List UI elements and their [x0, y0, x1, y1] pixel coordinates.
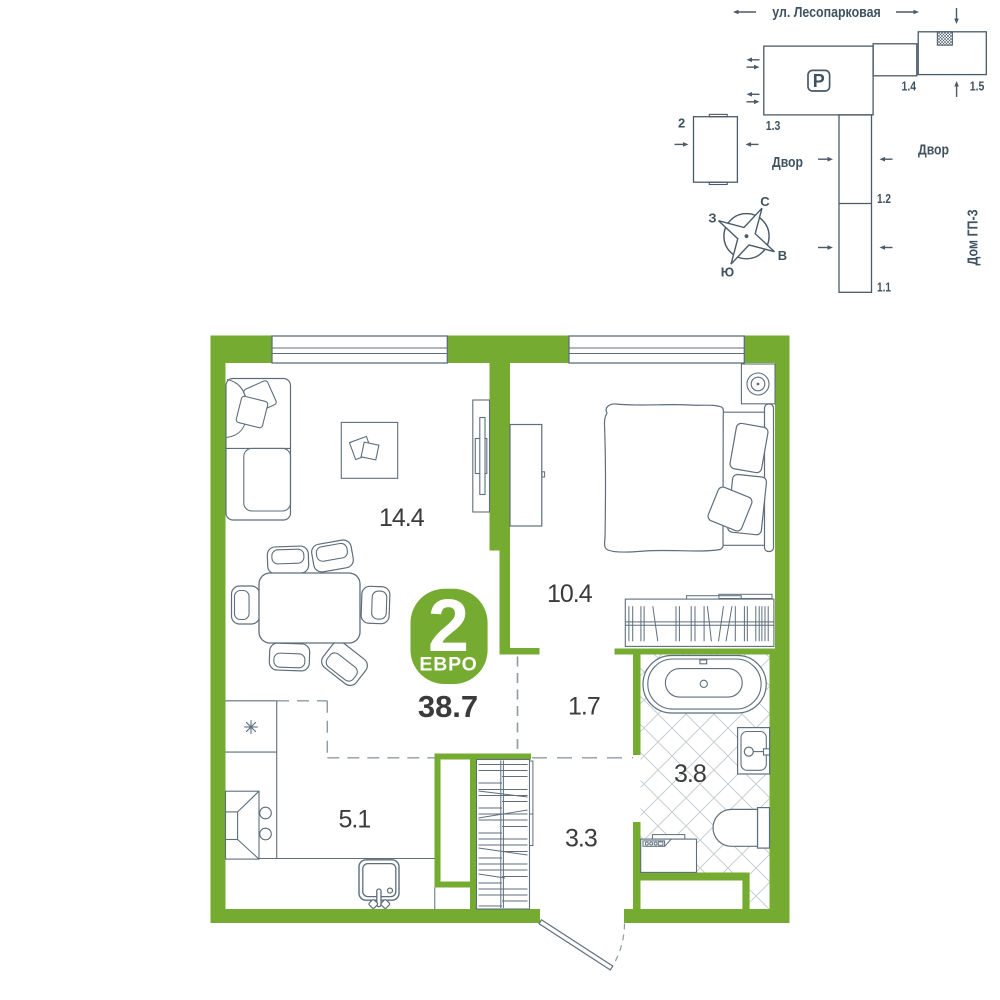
- svg-text:1.1: 1.1: [877, 280, 891, 295]
- svg-text:3.8: 3.8: [674, 760, 706, 788]
- svg-text:1.5: 1.5: [970, 79, 985, 94]
- svg-text:14.4: 14.4: [379, 504, 425, 532]
- svg-text:Двор: Двор: [918, 143, 949, 159]
- svg-text:С: С: [760, 194, 770, 209]
- svg-text:З: З: [708, 211, 716, 226]
- svg-text:3.3: 3.3: [565, 824, 597, 852]
- svg-text:ул. Лесопарковая: ул. Лесопарковая: [772, 4, 881, 21]
- svg-text:5.1: 5.1: [339, 806, 371, 834]
- svg-text:Ю: Ю: [721, 265, 734, 280]
- svg-text:Двор: Двор: [772, 155, 803, 171]
- svg-text:1.2: 1.2: [877, 191, 891, 206]
- svg-text:1.3: 1.3: [766, 118, 781, 133]
- svg-text:38.7: 38.7: [418, 689, 478, 724]
- svg-text:1.4: 1.4: [902, 79, 917, 94]
- svg-text:ЕВРО: ЕВРО: [419, 654, 477, 676]
- svg-text:10.4: 10.4: [547, 580, 593, 608]
- svg-text:Дом ГП-3: Дом ГП-3: [966, 210, 982, 266]
- svg-text:P: P: [813, 71, 825, 91]
- svg-text:В: В: [778, 248, 787, 263]
- svg-text:2: 2: [678, 116, 685, 131]
- svg-text:1.7: 1.7: [568, 692, 600, 720]
